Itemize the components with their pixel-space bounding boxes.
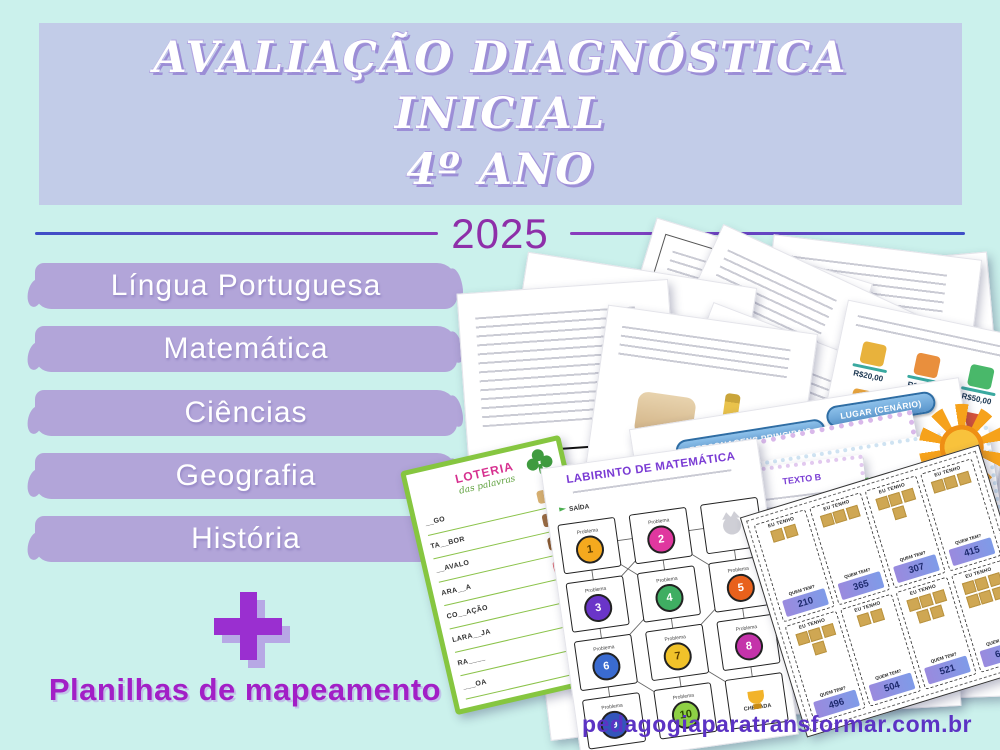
maze-box: Problema6 (574, 634, 638, 692)
badge-label: Matemática (163, 332, 328, 366)
maze-box: Problema1 (557, 517, 621, 575)
problem-number: 1 (574, 533, 606, 565)
plus-bar (214, 618, 282, 635)
badge-label: História (191, 522, 301, 556)
problem-number: 7 (662, 640, 694, 672)
maze-box: Problema2 (629, 507, 693, 565)
trophy-icon (747, 690, 765, 705)
word-blank: CO__AÇÃO (446, 604, 489, 620)
word-blank: __AVALO (435, 559, 470, 573)
badge-historia: História (35, 516, 457, 562)
problem-number: 4 (654, 582, 686, 614)
product-icon (967, 364, 995, 391)
word-blank: LARA__JA (452, 628, 492, 644)
problem-number: 2 (645, 523, 677, 555)
base-ten-blocks (959, 572, 1000, 643)
badge-label: Língua Portuguesa (111, 269, 382, 303)
price-item: R$20,00 (843, 338, 899, 385)
maze-box: Problema7 (645, 624, 709, 682)
word-blank: __GO (425, 516, 446, 527)
title-banner: AVALIAÇÃO DIAGNÓSTICA INICIAL 4º ANO (39, 23, 962, 205)
badge-label: Ciências (184, 396, 307, 430)
badge-label: Geografia (176, 459, 317, 493)
badge-lingua-portuguesa: Língua Portuguesa (35, 263, 457, 309)
worksheet-page-labirinto: LABIRINTO DE MATEMÁTICA SAÍDA Problema1 … (540, 438, 798, 750)
divider-line-right (570, 232, 965, 235)
plus-sign (214, 592, 282, 660)
product-icon (859, 341, 887, 368)
word-blank: ARA__A (441, 584, 472, 598)
word-blank: TA__BOR (430, 536, 466, 551)
extra-label: Planilhas de mapeamento (30, 672, 460, 708)
maze-box: Problema4 (637, 565, 701, 623)
word-blank: RA____ (457, 654, 486, 667)
problem-number: 6 (591, 650, 623, 682)
problem-number: 3 (582, 592, 614, 624)
badge-matematica: Matemática (35, 326, 457, 372)
banner-line-1: AVALIAÇÃO DIAGNÓSTICA (153, 32, 847, 84)
base-ten-blocks (904, 589, 963, 660)
base-ten-blocks (793, 623, 852, 694)
maze-box: Problema3 (565, 575, 629, 633)
badge-geografia: Geografia (35, 453, 457, 499)
badge-ciencias: Ciências (35, 390, 457, 436)
base-ten-blocks (928, 470, 987, 541)
base-ten-blocks (873, 487, 932, 558)
problem-number: 8 (733, 630, 765, 662)
banner-line-3: 4º ANO (406, 144, 595, 196)
poster: AVALIAÇÃO DIAGNÓSTICA INICIAL 4º ANO 202… (0, 0, 1000, 750)
website-url: pedagogiaparatransformar.com.br (582, 711, 972, 738)
text-lines-placeholder (618, 326, 791, 379)
product-icon (913, 352, 941, 379)
base-ten-blocks (762, 521, 821, 592)
word-blank: ___OA (462, 679, 487, 691)
banner-line-2: INICIAL (395, 88, 606, 140)
problem-number: 5 (725, 572, 757, 604)
base-ten-blocks (848, 606, 907, 677)
base-ten-blocks (817, 504, 876, 575)
